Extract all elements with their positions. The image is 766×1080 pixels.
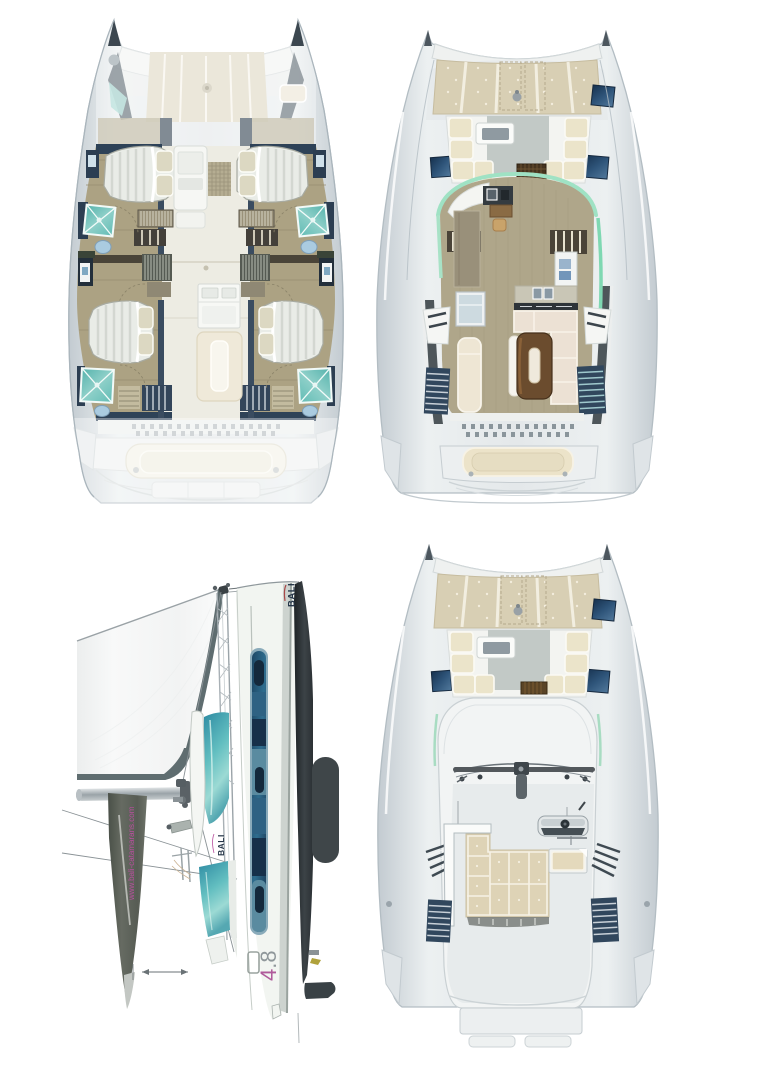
- svg-text:BALI: BALI: [216, 834, 226, 856]
- svg-text:www.bali-catamarans.com: www.bali-catamarans.com: [127, 806, 136, 901]
- svg-text:BALI: BALI: [287, 583, 298, 607]
